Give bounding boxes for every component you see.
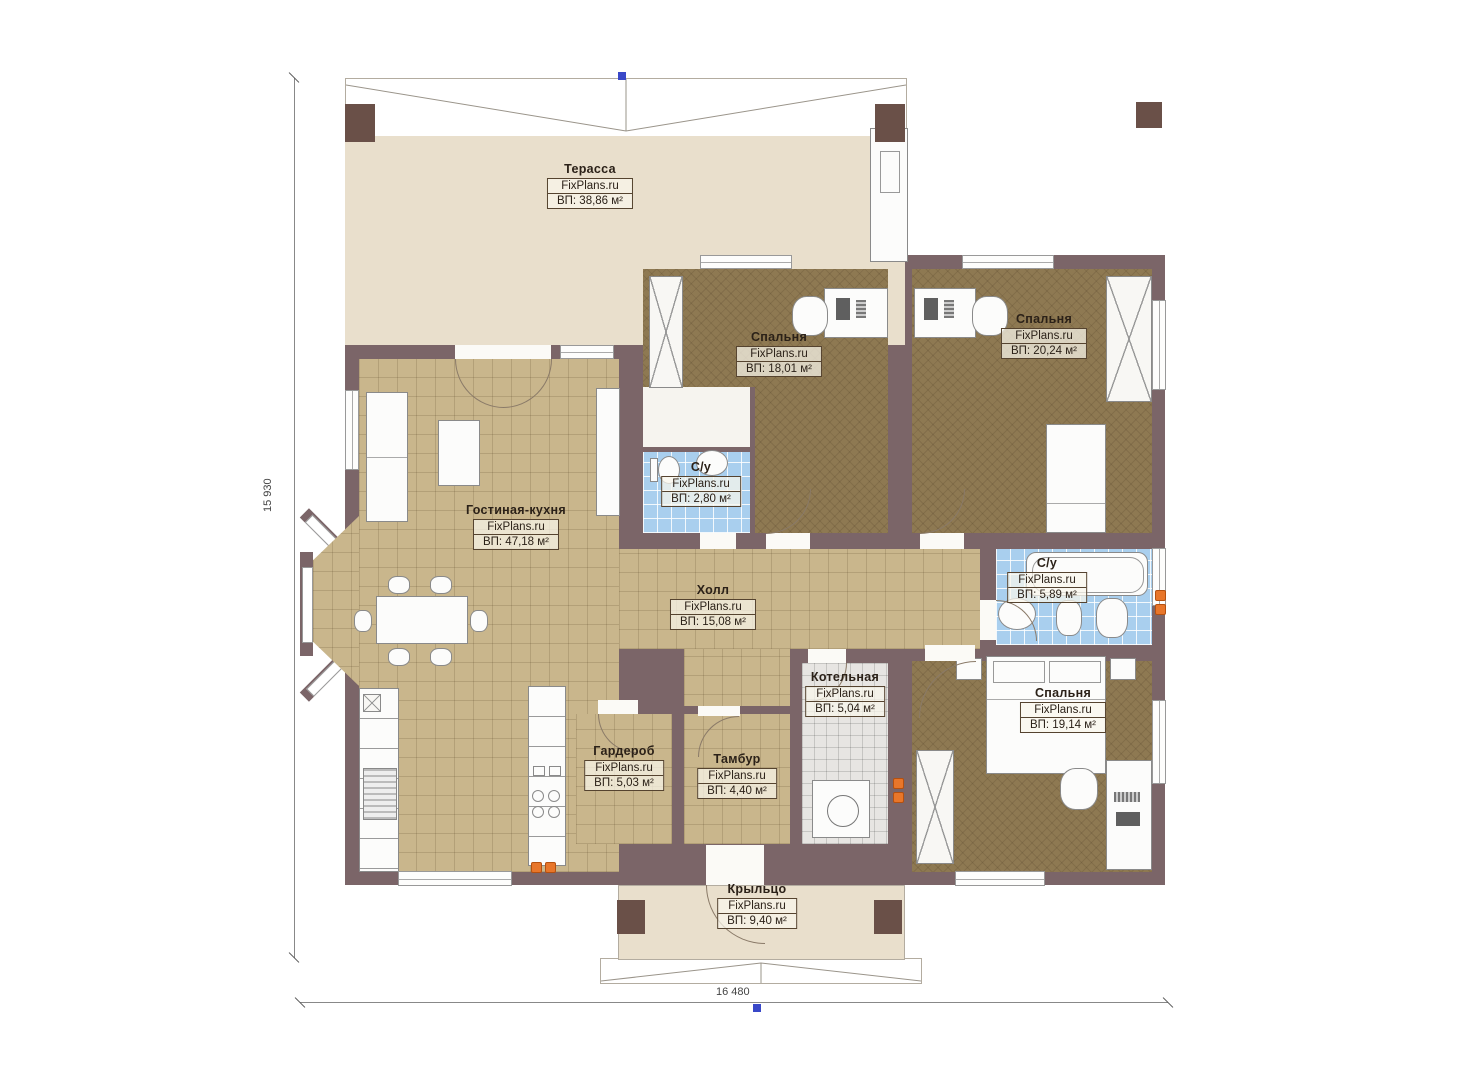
dimension-label-width: 16 480 (716, 986, 750, 998)
window (962, 255, 1054, 269)
corner-pillar (1136, 102, 1162, 128)
brand-text: FixPlans.ru (662, 477, 740, 492)
brand-text: FixPlans.ru (737, 347, 821, 362)
outlet (893, 778, 904, 789)
chair (430, 648, 452, 666)
room-name: Котельная (805, 670, 885, 684)
terrace-structure-inset (880, 151, 900, 193)
chair (430, 576, 452, 594)
stove-burner (548, 790, 560, 802)
bay-window (302, 567, 313, 643)
room-area: ВП: 18,01 м² (737, 362, 821, 376)
room-label-porch: Крыльцо FixPlans.ru ВП: 9,40 м² (717, 882, 797, 929)
room-name: Гардероб (584, 744, 664, 758)
room-info-box: FixPlans.ru ВП: 5,03 м² (584, 760, 664, 791)
kitchen-sink (363, 694, 381, 712)
room-label-wardrobe: Гардероб FixPlans.ru ВП: 5,03 м² (584, 744, 664, 791)
washer-drum (827, 795, 859, 827)
room-name: Крыльцо (717, 882, 797, 896)
room-info-box: FixPlans.ru ВП: 47,18 м² (473, 519, 559, 550)
floor-plan-canvas: 15 930 16 480 (0, 0, 1474, 1080)
room-area: ВП: 4,40 м² (698, 784, 776, 798)
room-info-box: FixPlans.ru ВП: 38,86 м² (547, 178, 633, 209)
room-name: С/у (1007, 556, 1087, 570)
room-name: С/у (661, 460, 741, 474)
wardrobe-door-gap (598, 700, 638, 714)
room-label-bedroom-2: Спальня FixPlans.ru ВП: 20,24 м² (1001, 312, 1087, 359)
chair (354, 610, 372, 632)
office-chair (1060, 768, 1098, 810)
room-area: ВП: 5,04 м² (806, 702, 884, 716)
dimension-line-left (294, 78, 295, 958)
room-label-bedroom-1: Спальня FixPlans.ru ВП: 18,01 м² (736, 330, 822, 377)
porch-pillar (874, 900, 902, 934)
terrace-door-gap (455, 345, 551, 359)
dimension-line-bottom (300, 1002, 1168, 1003)
terrace-pillar (345, 104, 375, 142)
monitor (924, 298, 938, 320)
bathroom2-door-gap (980, 600, 996, 640)
room-area: ВП: 47,18 м² (474, 535, 558, 549)
bedroom1-closet (643, 387, 755, 447)
coffee-table (438, 420, 480, 486)
sofa-cushion-line (367, 457, 407, 458)
room-label-terrace: Терасса FixPlans.ru ВП: 38,86 м² (547, 162, 633, 209)
terrace-roof-lines (346, 79, 906, 137)
room-name: Спальня (736, 330, 822, 344)
bay-floor (313, 516, 359, 686)
washing-machine (812, 780, 870, 838)
kitchen-island (528, 686, 566, 866)
brand-text: FixPlans.ru (474, 520, 558, 535)
outlet (1155, 604, 1166, 615)
brand-text: FixPlans.ru (1021, 703, 1105, 718)
terrace-roof (345, 78, 907, 138)
window (700, 255, 792, 269)
bed-fold-line (1047, 503, 1105, 504)
room-label-bathroom-2: С/у FixPlans.ru ВП: 5,89 м² (1007, 556, 1087, 603)
room-name: Тамбур (697, 752, 777, 766)
room-area: ВП: 2,80 м² (662, 492, 740, 506)
room-info-box: FixPlans.ru ВП: 15,08 м² (670, 599, 756, 630)
nightstand (1110, 658, 1136, 680)
window (1152, 300, 1166, 390)
outlet (1155, 590, 1166, 601)
brand-text: FixPlans.ru (585, 761, 663, 776)
outlet (893, 792, 904, 803)
stove-burner (548, 806, 560, 818)
porch-roof-lines (601, 959, 921, 983)
stove-burner (532, 806, 544, 818)
room-info-box: FixPlans.ru ВП: 20,24 м² (1001, 328, 1087, 359)
pillow (993, 661, 1045, 683)
tv-stand (596, 388, 620, 516)
room-label-boiler: Котельная FixPlans.ru ВП: 5,04 м² (805, 670, 885, 717)
room-info-box: FixPlans.ru ВП: 2,80 м² (661, 476, 741, 507)
room-info-box: FixPlans.ru ВП: 9,40 м² (717, 898, 797, 929)
keyboard (944, 300, 954, 318)
wardrobe-cabinet (916, 750, 954, 864)
room-area: ВП: 5,89 м² (1008, 588, 1086, 602)
terrace-pillar (875, 104, 905, 142)
window (398, 871, 512, 886)
monitor (836, 298, 850, 320)
bidet (1056, 600, 1082, 636)
brand-text: FixPlans.ru (698, 769, 776, 784)
outlet (545, 862, 556, 873)
room-area: ВП: 38,86 м² (548, 194, 632, 208)
hall-passage (684, 649, 790, 714)
boiler-door-gap (808, 649, 846, 663)
pillow (1049, 661, 1101, 683)
brand-text: FixPlans.ru (548, 179, 632, 194)
room-name: Спальня (1001, 312, 1087, 326)
room-area: ВП: 15,08 м² (671, 615, 755, 629)
toilet-tank (650, 458, 658, 482)
room-label-hall: Холл FixPlans.ru ВП: 15,08 м² (670, 583, 756, 630)
window (345, 390, 359, 470)
window (955, 871, 1045, 886)
keyboard (1114, 792, 1140, 802)
bedroom1-door-gap (766, 533, 810, 549)
roof-marker (753, 1004, 761, 1012)
room-info-box: FixPlans.ru ВП: 5,89 м² (1007, 572, 1087, 603)
brand-text: FixPlans.ru (806, 687, 884, 702)
chair (470, 610, 488, 632)
brand-text: FixPlans.ru (671, 600, 755, 615)
porch-pillar (617, 900, 645, 934)
room-label-bathroom-1: С/у FixPlans.ru ВП: 2,80 м² (661, 460, 741, 507)
hob-control (549, 766, 561, 776)
roof-marker (618, 72, 626, 80)
bay-wall (300, 552, 313, 656)
entrance-door-gap (706, 845, 764, 885)
wardrobe-cabinet (1106, 276, 1152, 402)
window (560, 345, 614, 359)
room-name: Спальня (1020, 686, 1106, 700)
chair (388, 576, 410, 594)
keyboard (856, 300, 866, 318)
bathroom1-door-gap (700, 533, 736, 549)
bedroom3-door-gap (925, 645, 975, 661)
room-label-bedroom-3: Спальня FixPlans.ru ВП: 19,14 м² (1020, 686, 1106, 733)
room-name: Гостиная-кухня (466, 503, 566, 517)
brand-text: FixPlans.ru (718, 899, 796, 914)
brand-text: FixPlans.ru (1002, 329, 1086, 344)
sofa (366, 392, 408, 522)
toilet (1096, 598, 1128, 638)
terrace-structure (870, 128, 908, 262)
chair (388, 648, 410, 666)
outlet (531, 862, 542, 873)
room-area: ВП: 5,03 м² (585, 776, 663, 790)
single-bed (1046, 424, 1106, 533)
room-area: ВП: 20,24 м² (1002, 344, 1086, 358)
vestibule-door-gap (698, 706, 740, 716)
room-label-vestibule: Тамбур FixPlans.ru ВП: 4,40 м² (697, 752, 777, 799)
room-info-box: FixPlans.ru ВП: 4,40 м² (697, 768, 777, 799)
brand-text: FixPlans.ru (1008, 573, 1086, 588)
porch-roof (600, 958, 922, 984)
room-info-box: FixPlans.ru ВП: 5,04 м² (805, 686, 885, 717)
room-name: Холл (670, 583, 756, 597)
dining-table (376, 596, 468, 644)
wardrobe-cabinet (649, 276, 683, 388)
room-info-box: FixPlans.ru ВП: 18,01 м² (736, 346, 822, 377)
room-label-living: Гостиная-кухня FixPlans.ru ВП: 47,18 м² (466, 503, 566, 550)
laptop (1116, 812, 1140, 826)
stove-burner (532, 790, 544, 802)
room-area: ВП: 9,40 м² (718, 914, 796, 928)
hob-control (533, 766, 545, 776)
dimension-label-height: 15 930 (262, 478, 274, 512)
window (1152, 700, 1166, 784)
room-area: ВП: 19,14 м² (1021, 718, 1105, 732)
fridge (363, 768, 397, 820)
room-name: Терасса (547, 162, 633, 176)
room-info-box: FixPlans.ru ВП: 19,14 м² (1020, 702, 1106, 733)
bedroom2-door-gap (920, 533, 964, 549)
